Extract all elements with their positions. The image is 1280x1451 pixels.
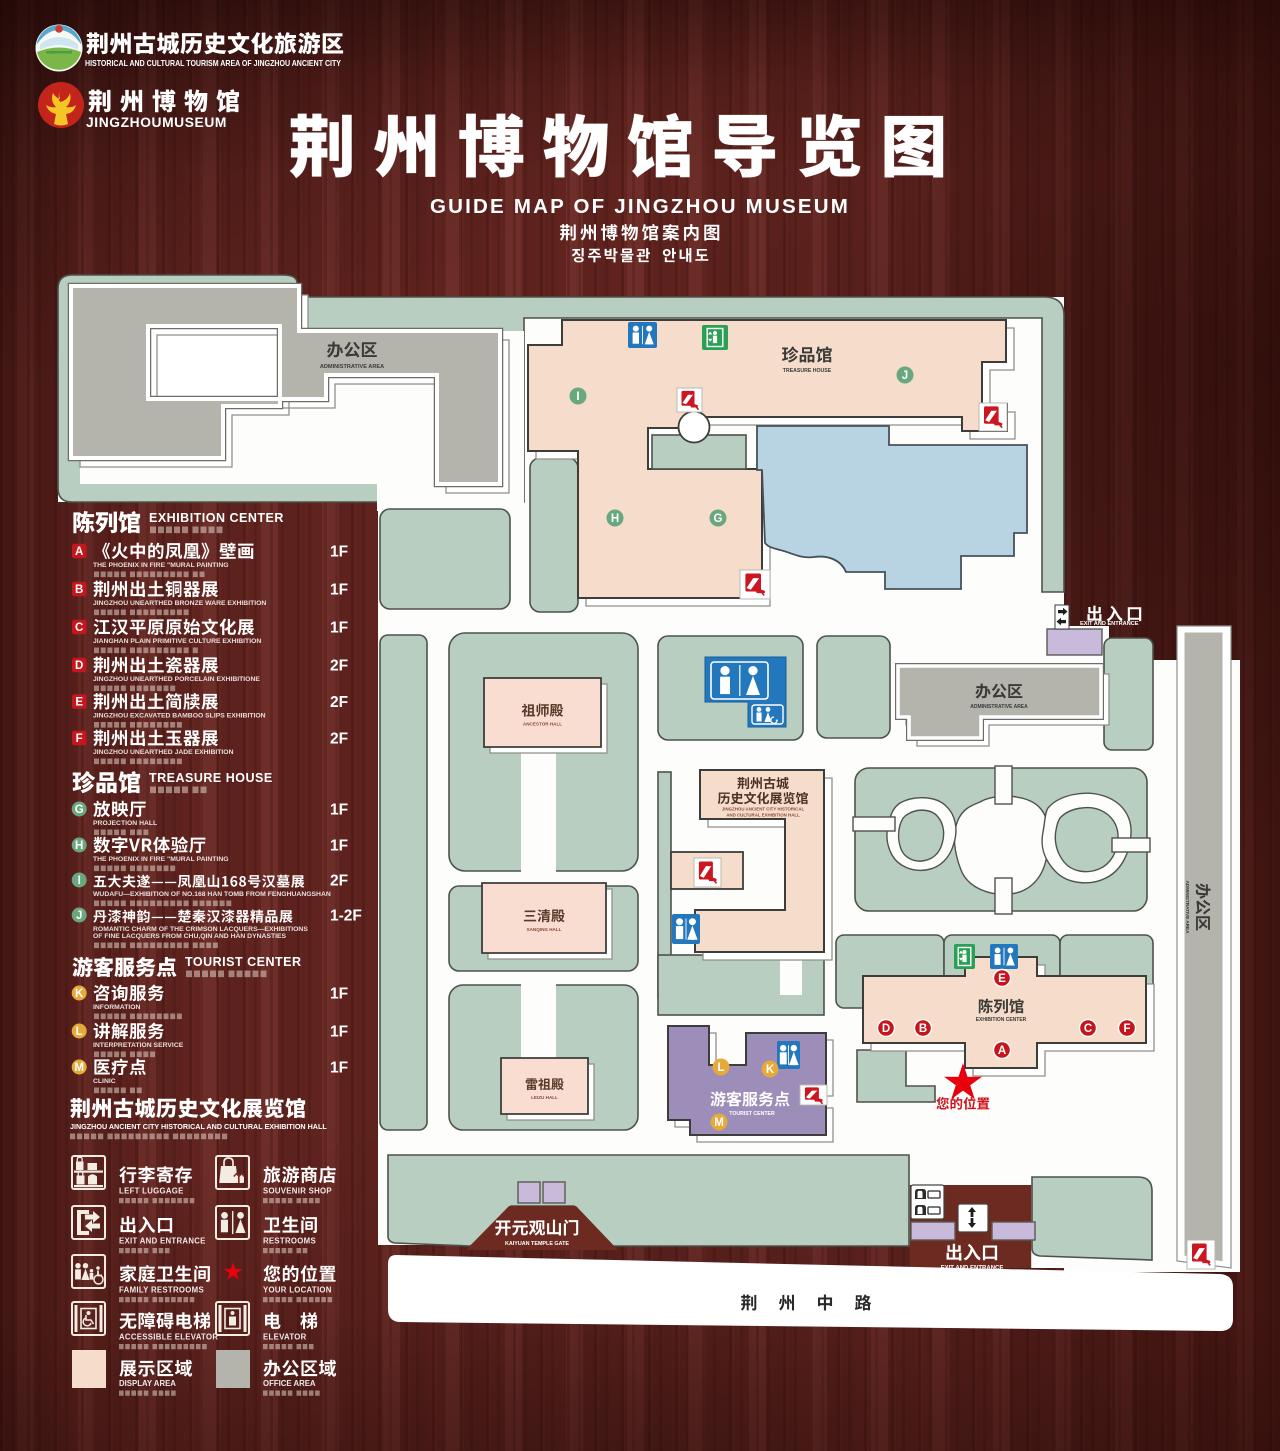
svg-text:EXIT AND ENTRANCE: EXIT AND ENTRANCE [119, 1237, 206, 1246]
svg-text:RESTROOMS: RESTROOMS [263, 1237, 316, 1246]
svg-text:A: A [75, 546, 83, 558]
svg-text:E: E [75, 697, 83, 709]
svg-text:JINGZHOU EXCAVATED BAMBOO SLIP: JINGZHOU EXCAVATED BAMBOO SLIPS EXHIBITI… [93, 713, 266, 720]
svg-text:EXHIBITION CENTER: EXHIBITION CENTER [976, 1017, 1027, 1023]
svg-text:H: H [75, 840, 83, 852]
svg-text:LEIZU HALL: LEIZU HALL [531, 1095, 558, 1100]
svg-text:M: M [74, 1062, 84, 1074]
svg-text:F: F [1123, 1023, 1130, 1035]
svg-text:JINGZHOU UNEARTHED PORCELAIN E: JINGZHOU UNEARTHED PORCELAIN EXHIBITIONE [93, 676, 260, 683]
svg-text:1F: 1F [330, 986, 348, 1003]
svg-text:SANQING HALL: SANQING HALL [527, 927, 562, 932]
svg-text:1F: 1F [330, 582, 348, 599]
svg-text:2F: 2F [330, 873, 348, 890]
svg-text:THE PHOENIX IN FIRE "MURAL PAI: THE PHOENIX IN FIRE "MURAL PAINTING [93, 856, 229, 863]
svg-text:PROJECTION HALL: PROJECTION HALL [93, 820, 157, 827]
svg-text:1F: 1F [330, 1024, 348, 1041]
svg-text:JINGZHOU UNEARTHED BRONZE WARE: JINGZHOU UNEARTHED BRONZE WARE EXHIBITIO… [93, 600, 266, 607]
svg-text:JINGZHOU UNEARTHED JADE EXHIBI: JINGZHOU UNEARTHED JADE EXHIBITION [93, 749, 234, 756]
svg-text:1F: 1F [330, 1060, 348, 1077]
svg-text:INTERPRETATION SERVICE: INTERPRETATION SERVICE [93, 1042, 184, 1049]
svg-text:H: H [611, 513, 619, 525]
svg-text:1F: 1F [330, 838, 348, 855]
svg-text:KAIYUAN TEMPLE GATE: KAIYUAN TEMPLE GATE [505, 1241, 569, 1247]
svg-text:ACCESSIBLE ELEVATOR: ACCESSIBLE ELEVATOR [119, 1333, 218, 1342]
svg-text:K: K [766, 1064, 775, 1076]
svg-text:TOURIST CENTER: TOURIST CENTER [729, 1111, 775, 1117]
svg-text:JINGZHOUMUSEUM: JINGZHOUMUSEUM [86, 115, 227, 130]
svg-text:ADMINISTRATIVE AREA: ADMINISTRATIVE AREA [320, 364, 384, 370]
svg-text:FAMILY RESTROOMS: FAMILY RESTROOMS [119, 1286, 204, 1295]
svg-text:B: B [919, 1023, 927, 1035]
svg-text:TREASURE HOUSE: TREASURE HOUSE [783, 368, 832, 374]
svg-text:I: I [78, 875, 81, 887]
svg-text:JINGZHOU ANCIENT CITY HISTORIC: JINGZHOU ANCIENT CITY HISTORICAL AND CUL… [70, 1122, 327, 1131]
svg-text:1-2F: 1-2F [330, 908, 362, 925]
svg-text:ELEVATOR: ELEVATOR [263, 1333, 307, 1342]
svg-text:C: C [75, 622, 83, 634]
svg-text:ADMINISTRATIVE AREA: ADMINISTRATIVE AREA [970, 704, 1028, 710]
svg-text:E: E [998, 973, 1006, 985]
svg-text:F: F [76, 733, 83, 745]
svg-text:1F: 1F [330, 802, 348, 819]
svg-text:SOUVENIR SHOP: SOUVENIR SHOP [263, 1187, 332, 1196]
svg-text:DISPLAY AREA: DISPLAY AREA [119, 1379, 176, 1388]
svg-text:AND CULTURAL EXHIBITION HALL: AND CULTURAL EXHIBITION HALL [726, 813, 800, 818]
svg-text:TREASURE HOUSE: TREASURE HOUSE [149, 771, 273, 785]
svg-text:OFFICE AREA: OFFICE AREA [263, 1379, 316, 1388]
svg-text:TOURIST CENTER: TOURIST CENTER [185, 955, 302, 969]
svg-text:HISTORICAL AND CULTURAL TOURIS: HISTORICAL AND CULTURAL TOURISM AREA OF … [85, 58, 341, 68]
svg-text:CLINIC: CLINIC [93, 1078, 116, 1085]
svg-text:L: L [717, 1062, 724, 1074]
svg-text:OF FINE LACQUERS FROM CHU,QIN: OF FINE LACQUERS FROM CHU,QIN AND HAN DY… [93, 933, 287, 940]
svg-text:2F: 2F [330, 658, 348, 675]
svg-text:G: G [714, 513, 723, 525]
svg-text:ROMANTIC CHARM OF THE CRIMSON: ROMANTIC CHARM OF THE CRIMSON LACQUERS—E… [93, 926, 308, 933]
svg-text:JINGZHOU ANCIENT CITY HISTORIC: JINGZHOU ANCIENT CITY HISTORICAL [722, 807, 805, 812]
svg-text:THE PHOENIX IN FIRE "MURAL PAI: THE PHOENIX IN FIRE "MURAL PAINTING [93, 562, 229, 569]
svg-text:2F: 2F [330, 731, 348, 748]
svg-text:LEFT LUGGAGE: LEFT LUGGAGE [119, 1187, 184, 1196]
svg-text:ADMINISTRATIVE AREA: ADMINISTRATIVE AREA [1185, 881, 1190, 935]
svg-text:1F: 1F [330, 544, 348, 561]
svg-text:D: D [882, 1023, 890, 1035]
svg-text:EXHIBITION CENTER: EXHIBITION CENTER [149, 511, 284, 525]
svg-text:J: J [902, 370, 908, 382]
svg-text:1F: 1F [330, 620, 348, 637]
svg-text:GUIDE MAP OF JINGZHOU MUSEUM: GUIDE MAP OF JINGZHOU MUSEUM [430, 195, 850, 218]
svg-text:L: L [76, 1026, 83, 1038]
svg-text:J: J [76, 910, 82, 922]
svg-text:INFORMATION: INFORMATION [93, 1004, 141, 1011]
svg-text:B: B [75, 584, 83, 596]
svg-text:A: A [998, 1045, 1006, 1057]
svg-text:M: M [714, 1117, 724, 1129]
svg-text:WUDAFU—EXHIBITION OF NO.168 HA: WUDAFU—EXHIBITION OF NO.168 HAN TOMB FRO… [93, 891, 331, 898]
svg-text:G: G [75, 804, 84, 816]
svg-text:I: I [576, 391, 579, 403]
svg-text:C: C [1084, 1023, 1092, 1035]
svg-text:EXIT AND ENTRANCE: EXIT AND ENTRANCE [1080, 621, 1139, 627]
svg-text:ANCESTOR HALL: ANCESTOR HALL [523, 722, 562, 727]
svg-text:2F: 2F [330, 694, 348, 711]
svg-text:JIANGHAN PLAIN PRIMITIVE CULTU: JIANGHAN PLAIN PRIMITIVE CULTURE EXHIBIT… [93, 638, 261, 645]
svg-text:YOUR LOCATION: YOUR LOCATION [263, 1286, 332, 1295]
svg-text:D: D [75, 660, 83, 672]
svg-text:K: K [75, 988, 84, 1000]
